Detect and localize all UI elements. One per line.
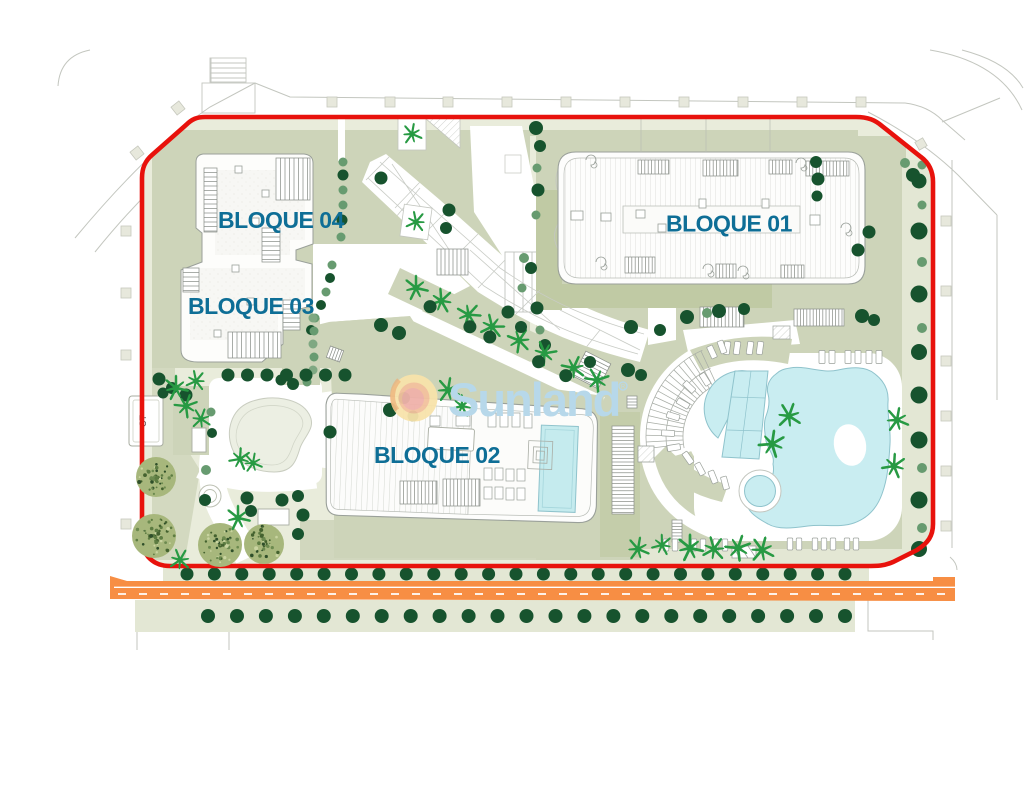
svg-text:BLOQUE 04: BLOQUE 04 (218, 207, 345, 233)
svg-text:BLOQUE 02: BLOQUE 02 (374, 442, 500, 468)
svg-text:BLOQUE 03: BLOQUE 03 (188, 293, 314, 319)
svg-text:Sunland: Sunland (448, 373, 619, 426)
svg-text:R: R (621, 385, 626, 391)
svg-text:BLOQUE 01: BLOQUE 01 (666, 211, 793, 237)
